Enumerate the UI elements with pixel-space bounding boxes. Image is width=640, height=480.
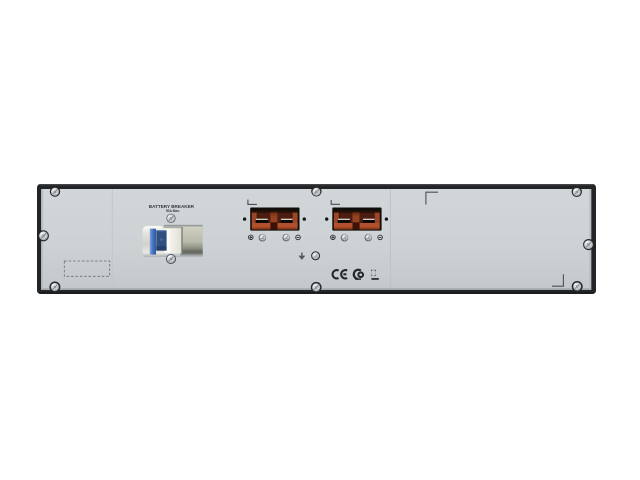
svg-text:50A Max.: 50A Max.	[166, 208, 180, 213]
